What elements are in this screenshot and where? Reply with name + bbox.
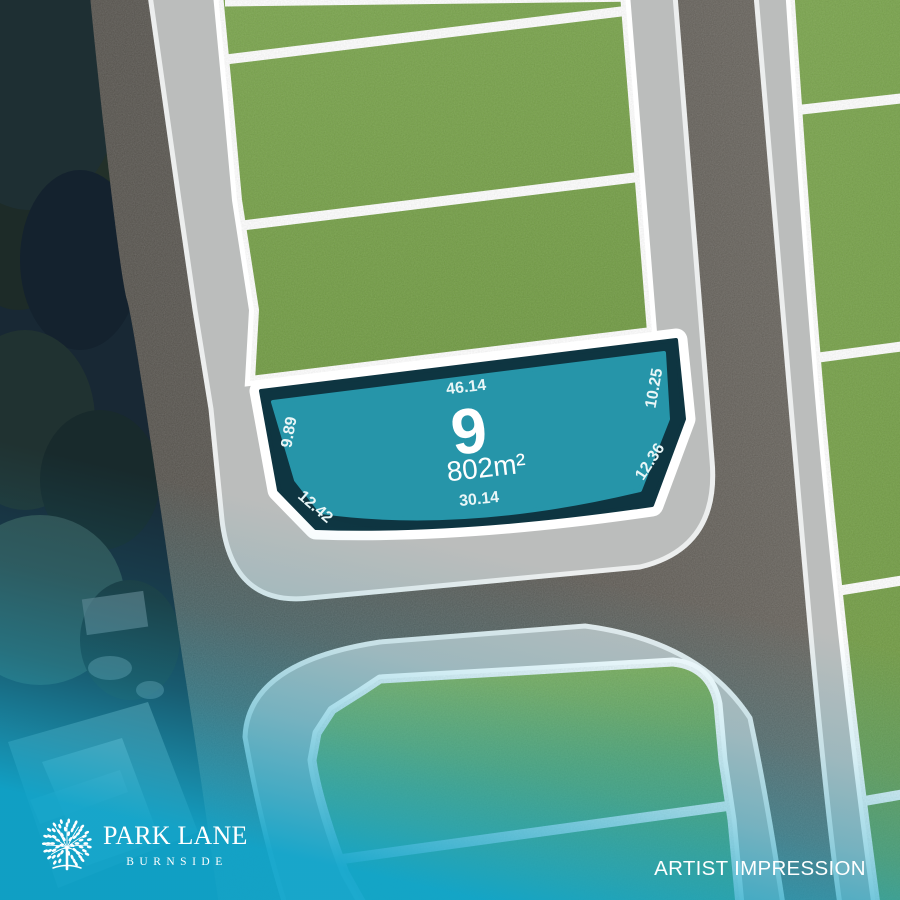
svg-text:ARTIST IMPRESSION: ARTIST IMPRESSION: [654, 857, 866, 880]
svg-text:PARK LANE: PARK LANE: [103, 821, 248, 850]
svg-text:BURNSIDE: BURNSIDE: [126, 856, 228, 868]
